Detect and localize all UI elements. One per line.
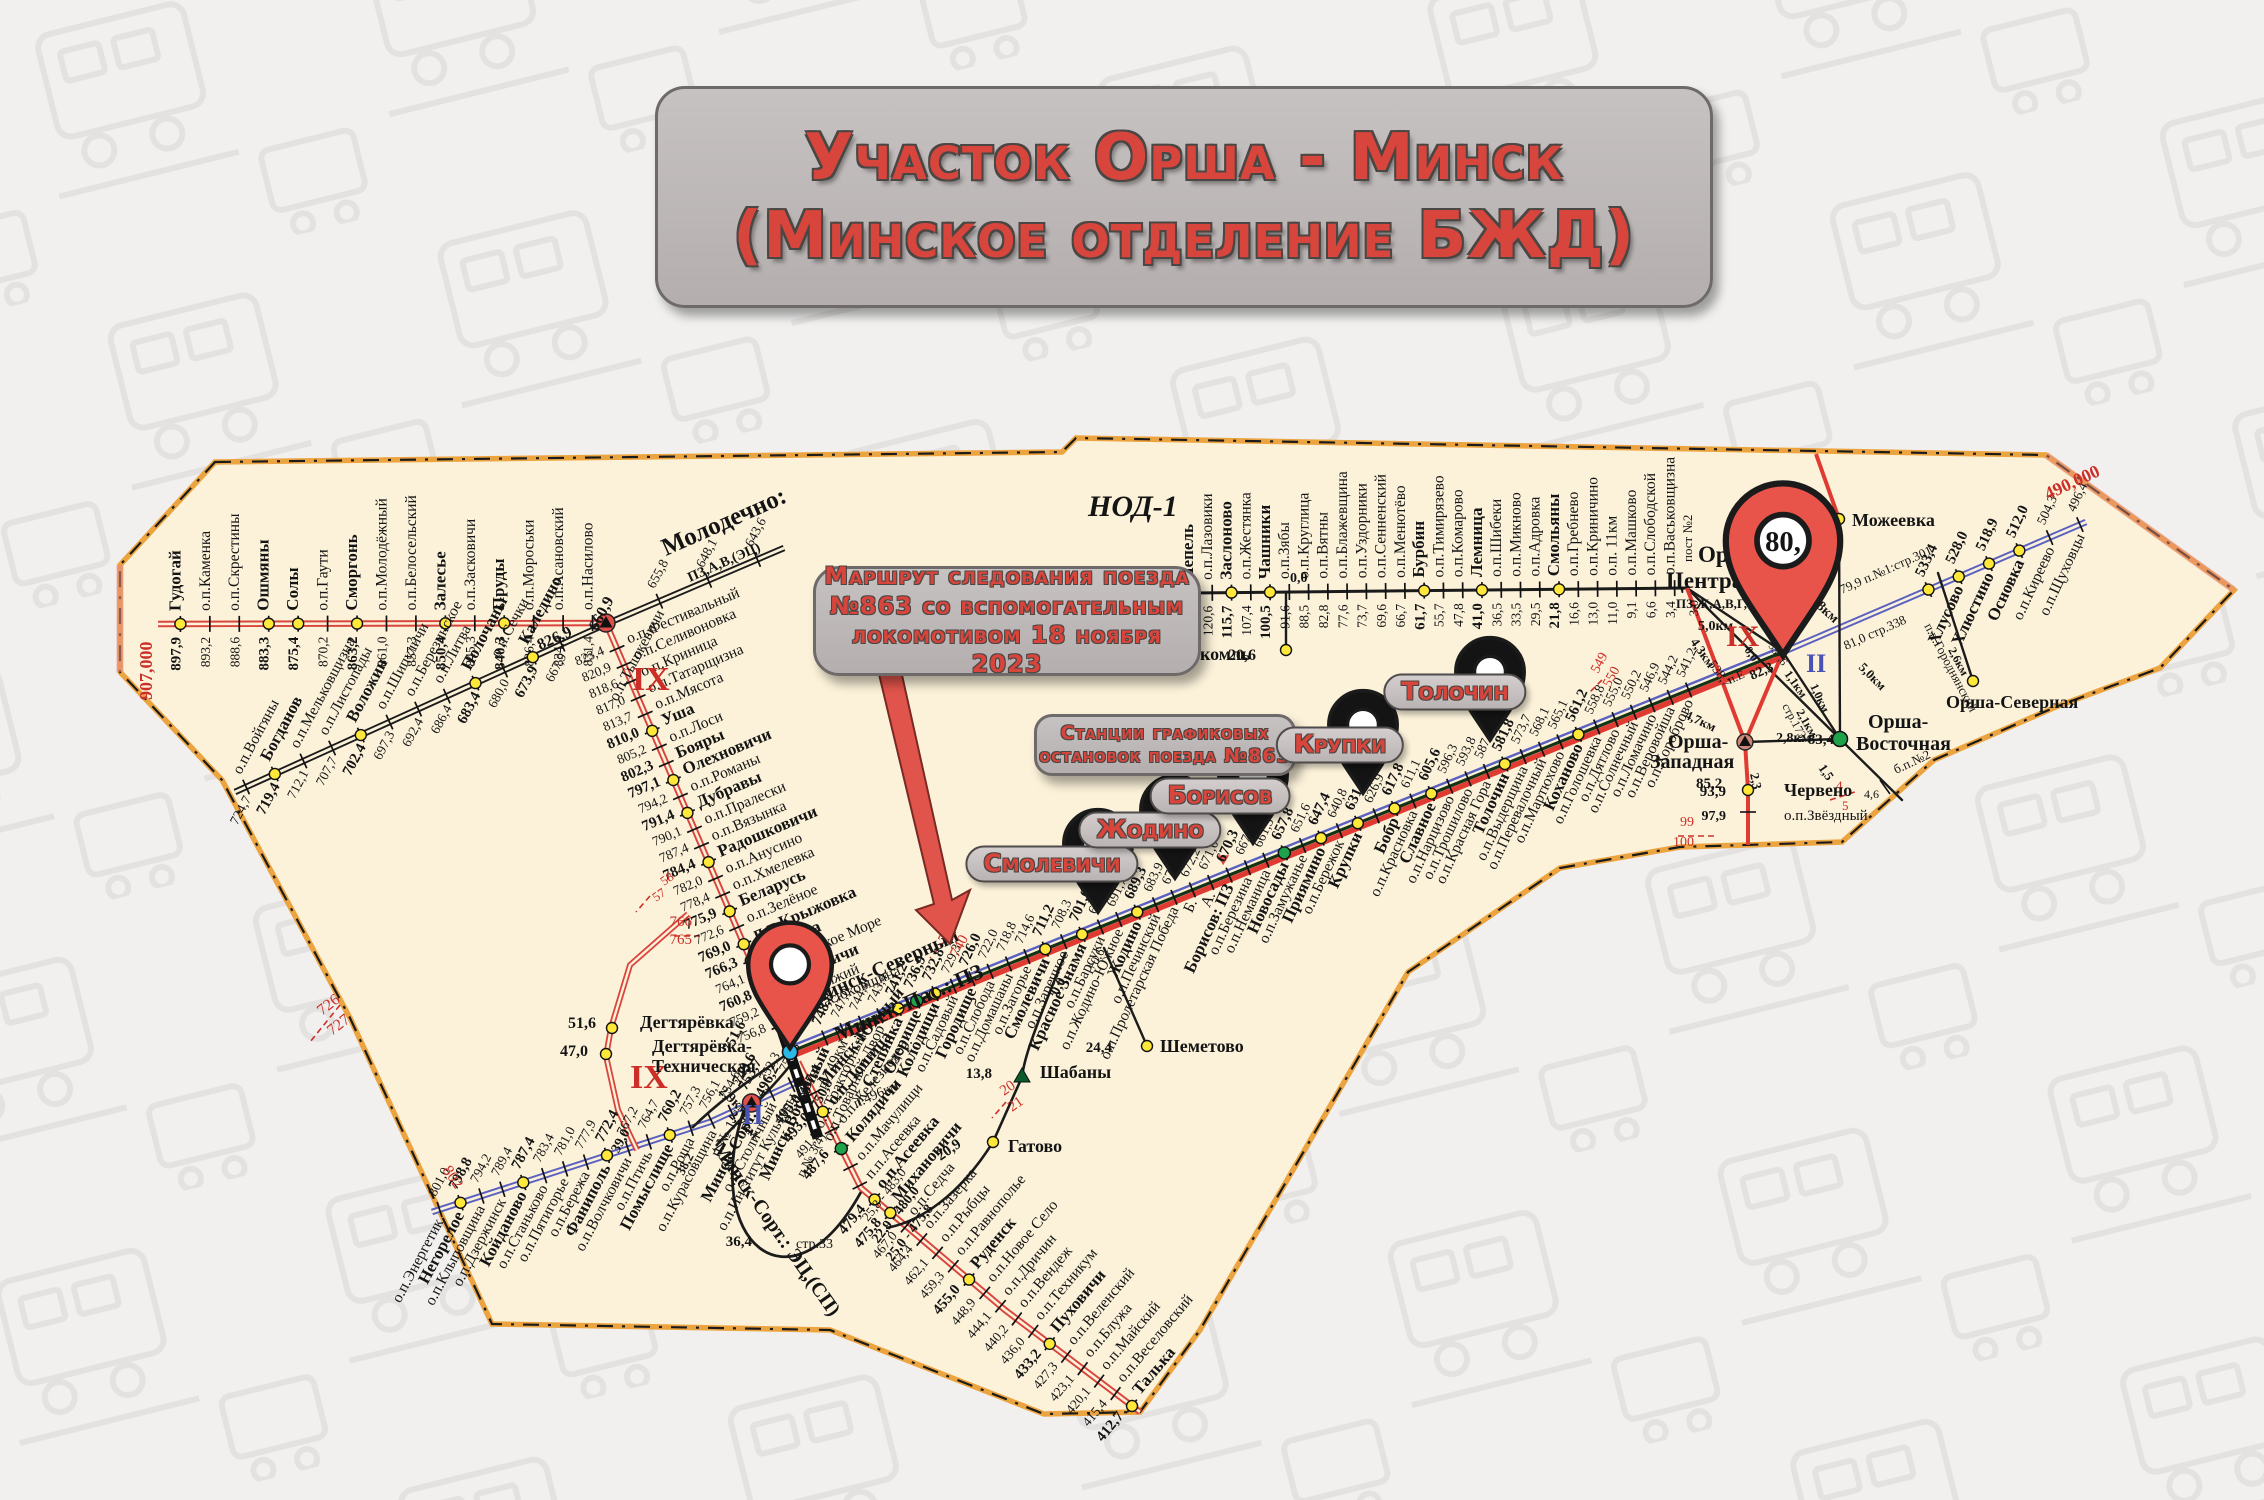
route-callout-line2: №863 со вспомогательным [830,592,1184,621]
svg-text:893,2: 893,2 [198,637,213,667]
svg-text:73,7: 73,7 [1355,604,1370,628]
svg-text:Западная: Западная [1650,751,1734,773]
svg-text:Червено: Червено [1784,780,1852,800]
stop-pill-3: Борисов [1150,778,1291,815]
svg-text:о.п.Шибеки: о.п.Шибеки [1488,499,1505,577]
svg-text:100: 100 [1673,835,1694,850]
svg-text:24,4: 24,4 [1086,1040,1113,1056]
svg-text:13,8: 13,8 [966,1066,992,1082]
svg-text:99: 99 [1680,815,1694,830]
svg-text:33,5: 33,5 [1509,602,1524,626]
svg-text:82,8: 82,8 [1316,604,1331,628]
stops-callout: Станции графиковых остановок поезда №863 [1034,714,1296,776]
svg-text:о.п.Гаути: о.п.Гаути [315,549,332,610]
svg-text:Орша-: Орша- [1668,731,1728,753]
svg-text:о.п.Гребнево: о.п.Гребнево [1565,491,1582,576]
svg-text:2,8км: 2,8км [1776,731,1812,746]
stop-pill-1: Смолевичи [965,846,1138,883]
svg-text:766: 766 [670,914,693,930]
svg-text:80,: 80, [1765,527,1801,558]
svg-text:о.п.Микново: о.п.Микново [1507,492,1524,577]
svg-text:Лемница: Лемница [1467,507,1486,577]
svg-text:о.п.Лазовики: о.п.Лазовики [1199,493,1216,579]
stop-pill-2: Жодино [1078,812,1221,849]
svg-text:о.п.Криничино: о.п.Криничино [1584,477,1601,576]
map-title-line1: Участок Орша - Минск [804,119,1563,197]
svg-text:о.п.Адровка: о.п.Адровка [1527,497,1544,577]
svg-text:83,4: 83,4 [1808,732,1835,748]
svg-text:3,0: 3,0 [1686,600,1701,616]
svg-text:107,4: 107,4 [1239,605,1254,636]
svg-text:о.п.Сенненский: о.п.Сенненский [1373,474,1390,578]
svg-text:883,3: 883,3 [257,637,273,671]
svg-text:Залесье: Залесье [430,551,449,610]
svg-text:20,6: 20,6 [1228,647,1256,664]
svg-text:Сморгонь: Сморгонь [342,534,361,610]
svg-text:о.п.Жестянка: о.п.Жестянка [1238,492,1255,579]
svg-text:о.п.Насилово: о.п.Насилово [580,522,597,610]
svg-text:115,7: 115,7 [1220,605,1236,638]
svg-text:61,7: 61,7 [1412,603,1428,630]
svg-text:41,0: 41,0 [1470,603,1486,629]
svg-text:4,6: 4,6 [1864,787,1879,801]
svg-text:о.п.Засковичи: о.п.Засковичи [462,519,479,611]
stop-pill-4: Крупки [1276,727,1404,764]
svg-text:88,5: 88,5 [1297,605,1312,629]
svg-text:47,0: 47,0 [560,1043,588,1060]
svg-text:Заслоново: Заслоново [1216,501,1235,580]
svg-text:о.п.Тимирязево: о.п.Тимирязево [1430,475,1447,577]
svg-text:о.п.Менютёво: о.п.Менютёво [1392,485,1409,578]
map-title-line2: (Минское отделение БЖД) [733,197,1635,275]
svg-text:о.п.Машково: о.п.Машково [1623,489,1640,575]
svg-text:13,0: 13,0 [1586,602,1601,626]
svg-text:765: 765 [670,932,693,948]
svg-text:55,7: 55,7 [1432,603,1447,627]
svg-text:о.п.Белосельский: о.п.Белосельский [403,495,420,610]
route-callout: Маршрут следования поезда №863 со вспомо… [813,566,1201,676]
svg-text:6,6: 6,6 [1644,601,1659,618]
svg-text:Дегтярёвка: Дегтярёвка [640,1012,734,1032]
svg-text:Можеевка: Можеевка [1852,510,1935,530]
svg-text:о.п.Мороськи: о.п.Мороськи [521,520,538,611]
svg-text:9,1: 9,1 [1624,602,1639,619]
svg-text:91,6: 91,6 [1277,605,1292,629]
svg-text:II: II [1806,649,1826,678]
svg-text:Бурбин: Бурбин [1409,521,1428,578]
railway-map-canvas: Гудогай897,9о.п.Каменка893,2о.п.Скрестин… [0,0,2264,1500]
svg-text:100,5: 100,5 [1258,605,1274,639]
svg-text:о.п.Скрестины: о.п.Скрестины [226,513,243,611]
svg-text:47,8: 47,8 [1451,603,1466,627]
svg-text:II: II [742,1100,764,1131]
svg-text:о.п.Слободской: о.п.Слободской [1642,473,1659,575]
svg-text:36,4: 36,4 [726,1234,753,1250]
svg-text:Смольяны: Смольяны [1544,494,1563,577]
svg-text:29,5: 29,5 [1528,602,1543,626]
svg-text:пост №2: пост №2 [1680,515,1695,562]
svg-text:97,9: 97,9 [1702,809,1727,824]
svg-text:888,6: 888,6 [227,637,242,668]
svg-text:0,0: 0,0 [1290,571,1308,586]
svg-text:НОД-1: НОД-1 [1087,490,1178,523]
svg-text:о.п.Уздорники: о.п.Уздорники [1353,483,1370,578]
svg-text:Гудогай: Гудогай [165,550,184,611]
svg-text:51,6: 51,6 [568,1015,596,1032]
stops-callout-line1: Станции графиковых [1061,722,1270,745]
svg-text:66,7: 66,7 [1393,604,1408,628]
svg-text:Восточная: Восточная [1856,733,1951,755]
svg-text:77,6: 77,6 [1335,604,1350,628]
svg-text:IX: IX [632,661,670,698]
svg-text:о.п.Каменка: о.п.Каменка [197,531,214,611]
svg-text:Техническая: Техническая [652,1056,756,1076]
route-callout-line1: Маршрут следования поезда [824,562,1190,591]
svg-text:о.п.Вятны: о.п.Вятны [1315,511,1332,578]
svg-text:Орша-: Орша- [1868,711,1928,733]
svg-text:о.п. 11км: о.п. 11км [1604,516,1621,576]
svg-text:о.п.Молодёжный: о.п.Молодёжный [373,498,390,610]
stops-callout-line2: остановок поезда №863 [1039,745,1290,768]
svg-text:Ошмяны: Ошмяны [254,539,273,610]
map-title: Участок Орша - Минск (Минское отделение … [655,86,1713,308]
route-callout-line3: локомотивом 18 ноября 2023 [816,621,1198,680]
svg-text:о.п.Блажевщина: о.п.Блажевщина [1334,471,1351,578]
svg-text:Чашники: Чашники [1255,505,1274,580]
svg-text:120,6: 120,6 [1200,606,1215,637]
svg-text:69,6: 69,6 [1374,604,1389,628]
svg-text:о.п.Круглица: о.п.Круглица [1295,493,1312,579]
svg-text:Гатово: Гатово [1008,1136,1062,1156]
svg-text:16,6: 16,6 [1566,602,1581,626]
svg-text:о.п.Комарово: о.п.Комарово [1450,489,1467,577]
svg-text:Шабаны: Шабаны [1040,1062,1111,1082]
svg-text:Шеметово: Шеметово [1160,1036,1244,1056]
svg-text:о.п.Звёздный: о.п.Звёздный [1784,808,1868,824]
svg-text:Дегтярёвка-: Дегтярёвка- [652,1036,752,1056]
svg-text:93,9: 93,9 [1700,784,1726,800]
svg-text:11,0: 11,0 [1605,601,1620,624]
svg-text:21,8: 21,8 [1547,602,1563,628]
svg-text:стр.33: стр.33 [796,1237,833,1252]
svg-text:36,5: 36,5 [1489,603,1504,627]
svg-text:897,9: 897,9 [168,637,184,671]
svg-text:907,000: 907,000 [136,642,156,701]
svg-text:875,4: 875,4 [286,636,302,670]
stop-pill-5: Толочин [1383,674,1526,711]
svg-text:Солы: Солы [283,567,302,610]
svg-text:о.п.Васьковщизна: о.п.Васьковщизна [1662,457,1679,575]
